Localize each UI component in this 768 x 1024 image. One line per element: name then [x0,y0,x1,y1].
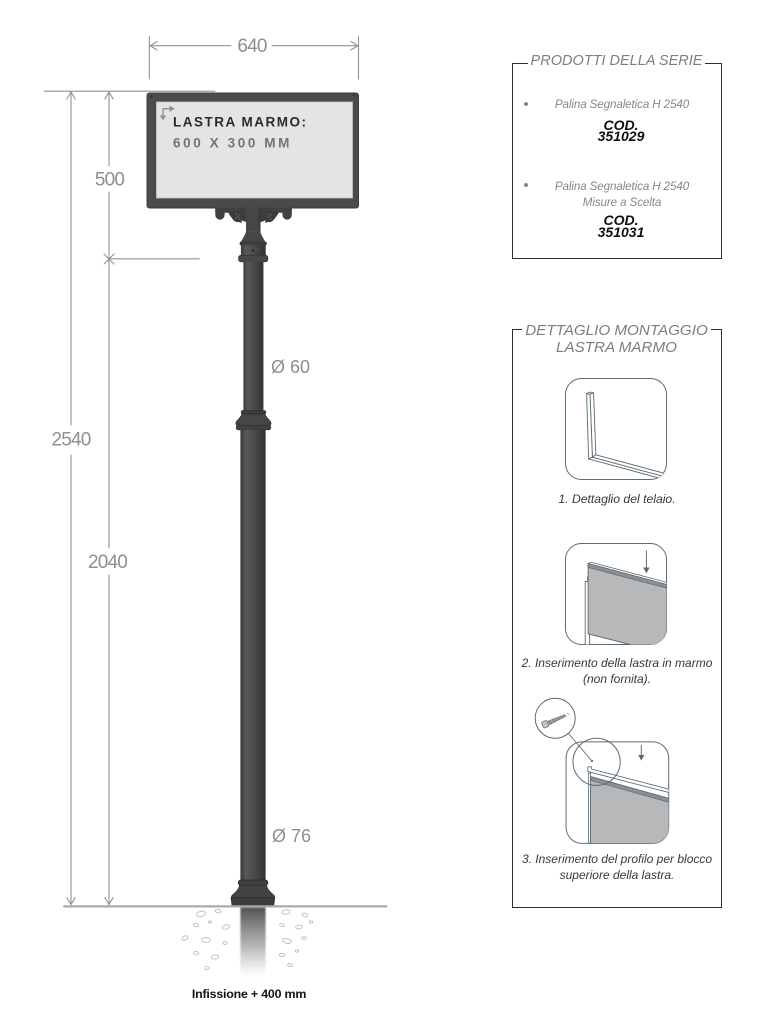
svg-text:2040: 2040 [88,552,127,573]
svg-text:LASTRA MARMO:: LASTRA MARMO: [173,115,307,130]
svg-text:2540: 2540 [51,430,90,451]
svg-text:640: 640 [237,36,267,57]
svg-text:Ø 60: Ø 60 [271,357,310,377]
svg-text:Infissione + 400 mm: Infissione + 400 mm [192,987,306,1001]
svg-text:500: 500 [95,170,125,191]
svg-text:600 X 300 MM: 600 X 300 MM [173,136,292,151]
svg-text:Ø 76: Ø 76 [272,826,311,846]
